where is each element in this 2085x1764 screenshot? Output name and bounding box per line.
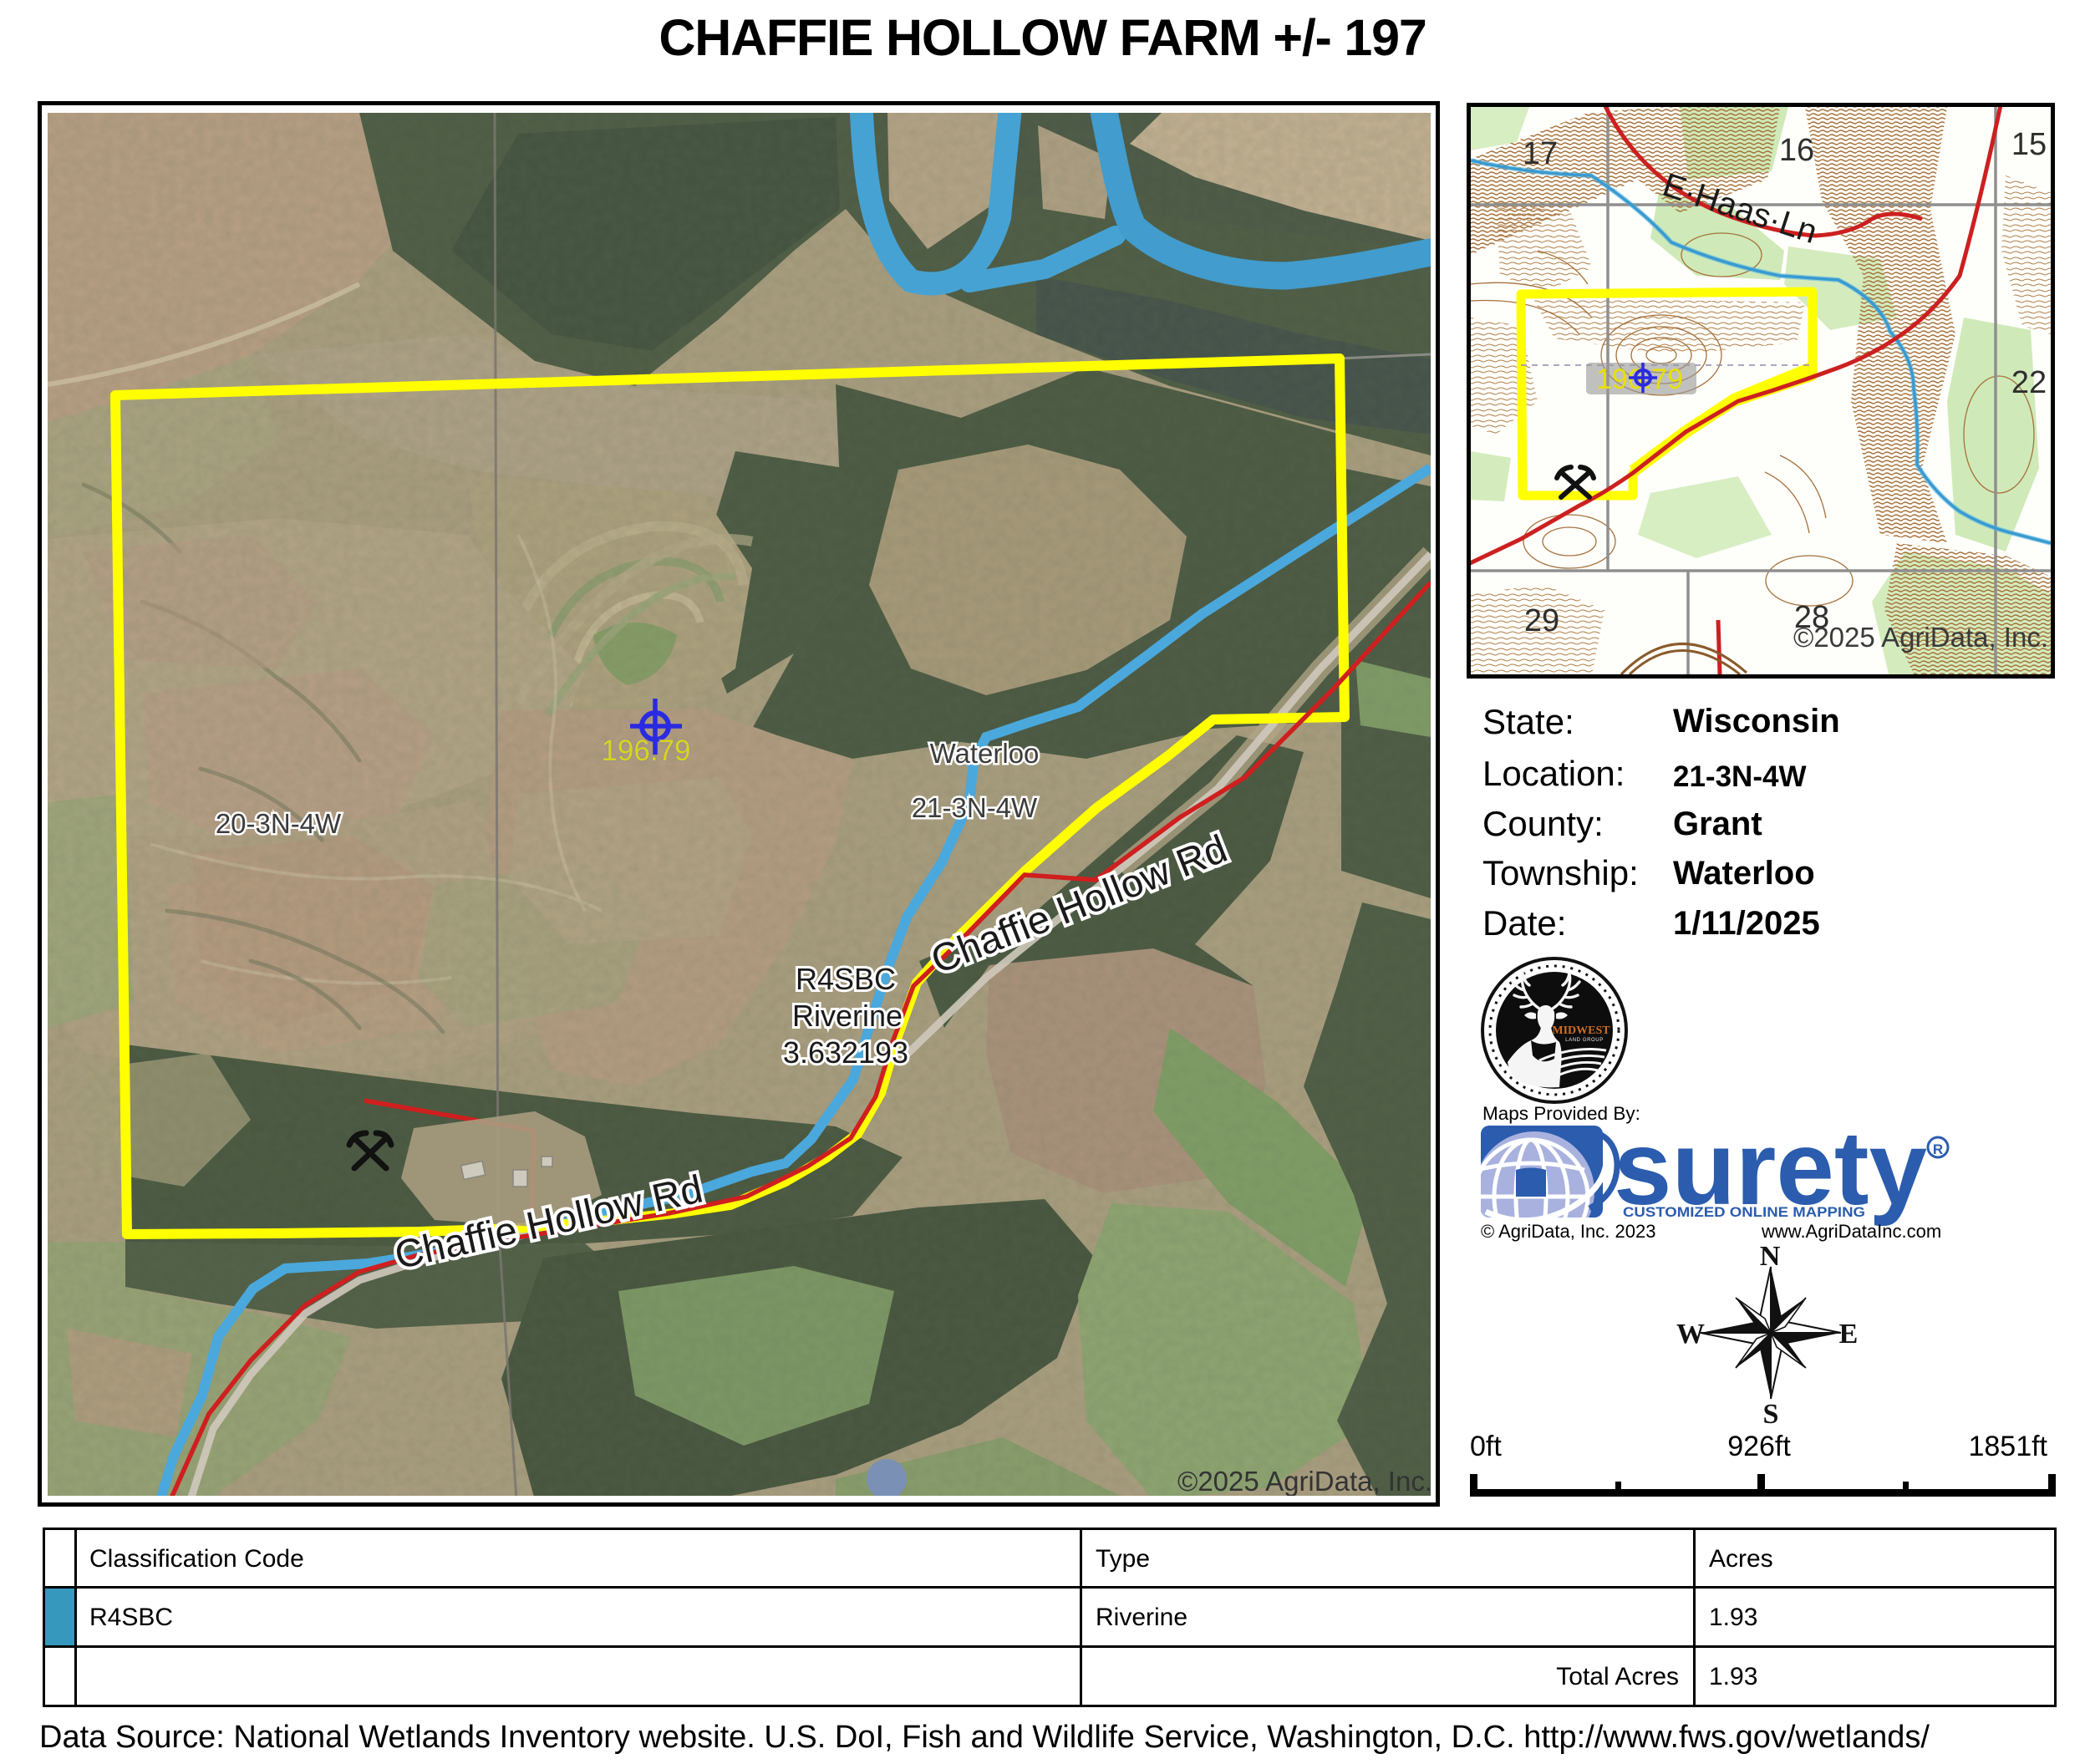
- svg-text:20-3N-4W: 20-3N-4W: [216, 808, 342, 839]
- svg-text:196.79: 196.79: [601, 735, 690, 767]
- svg-text:MIDWEST: MIDWEST: [1552, 1024, 1610, 1037]
- svg-text:17: 17: [1523, 136, 1558, 171]
- svg-text:CUSTOMIZED ONLINE MAPPING: CUSTOMIZED ONLINE MAPPING: [1623, 1204, 1865, 1220]
- svg-text:LAND GROUP: LAND GROUP: [1565, 1038, 1604, 1043]
- svg-text:R: R: [1933, 1141, 1943, 1157]
- svg-text:W: W: [1676, 1319, 1705, 1350]
- svg-text:S: S: [1763, 1399, 1779, 1430]
- svg-text:196.79: 196.79: [1596, 363, 1683, 395]
- svg-text:©2025 AgriData, Inc.: ©2025 AgriData, Inc.: [1793, 622, 2048, 653]
- svg-text:©2025 AgriData, Inc.: ©2025 AgriData, Inc.: [1177, 1466, 1432, 1497]
- svg-text:E: E: [1839, 1319, 1859, 1350]
- svg-text:16: 16: [1779, 133, 1814, 168]
- svg-text:15: 15: [2011, 127, 2047, 162]
- svg-text:22: 22: [2011, 365, 2047, 400]
- svg-text:Waterloo: Waterloo: [930, 738, 1040, 769]
- svg-text:Riverine: Riverine: [792, 999, 903, 1033]
- svg-text:N: N: [1760, 1241, 1781, 1272]
- svg-text:3.632193: 3.632193: [783, 1035, 908, 1070]
- svg-text:29: 29: [1524, 603, 1559, 638]
- svg-text:21-3N-4W: 21-3N-4W: [912, 792, 1038, 823]
- svg-text:R4SBC: R4SBC: [796, 962, 896, 996]
